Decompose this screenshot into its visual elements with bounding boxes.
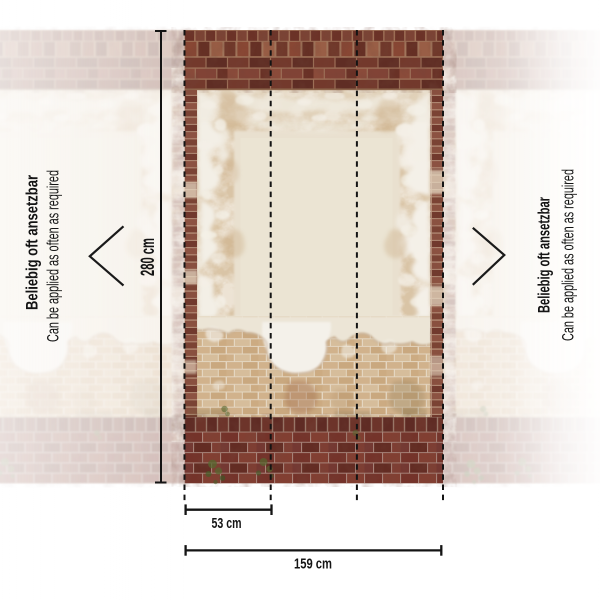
- svg-text:159 cm: 159 cm: [294, 557, 332, 573]
- svg-text:Beliebig oft ansetzbar: Beliebig oft ansetzbar: [535, 197, 554, 313]
- svg-text:Beliebig oft ansetzbar: Beliebig oft ansetzbar: [23, 175, 42, 310]
- svg-text:53 cm: 53 cm: [212, 516, 242, 532]
- svg-text:280 cm: 280 cm: [138, 238, 159, 276]
- svg-text:Can be applied as often as req: Can be applied as often as required: [44, 170, 63, 342]
- svg-text:Can be applied as often as req: Can be applied as often as required: [559, 169, 578, 341]
